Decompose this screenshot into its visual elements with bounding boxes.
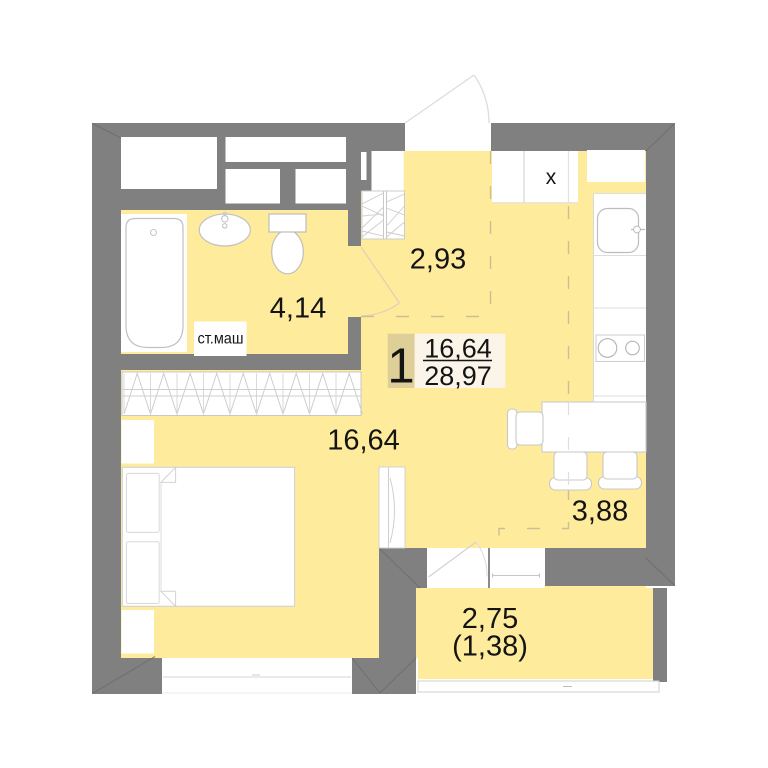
- svg-text:1: 1: [387, 340, 414, 394]
- svg-text:3,88: 3,88: [572, 496, 628, 528]
- svg-text:x: x: [546, 166, 557, 189]
- svg-text:ст.маш: ст.маш: [198, 331, 244, 348]
- svg-text:4,14: 4,14: [270, 293, 326, 325]
- svg-text:2,93: 2,93: [410, 244, 466, 276]
- svg-text:16,64: 16,64: [327, 425, 400, 457]
- svg-text:28,97: 28,97: [424, 361, 492, 391]
- svg-text:(1,38): (1,38): [452, 631, 528, 663]
- svg-text:16,64: 16,64: [424, 334, 492, 364]
